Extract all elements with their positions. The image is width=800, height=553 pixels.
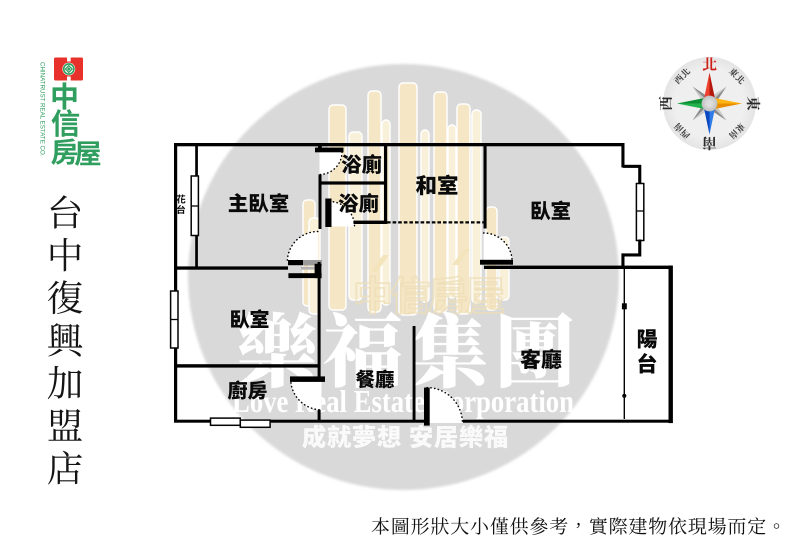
svg-text:Love Real Estate Corporation: Love Real Estate Corporation xyxy=(232,384,574,419)
svg-text:CHINATRUST REAL ESTATE CO.: CHINATRUST REAL ESTATE CO. xyxy=(39,62,46,157)
